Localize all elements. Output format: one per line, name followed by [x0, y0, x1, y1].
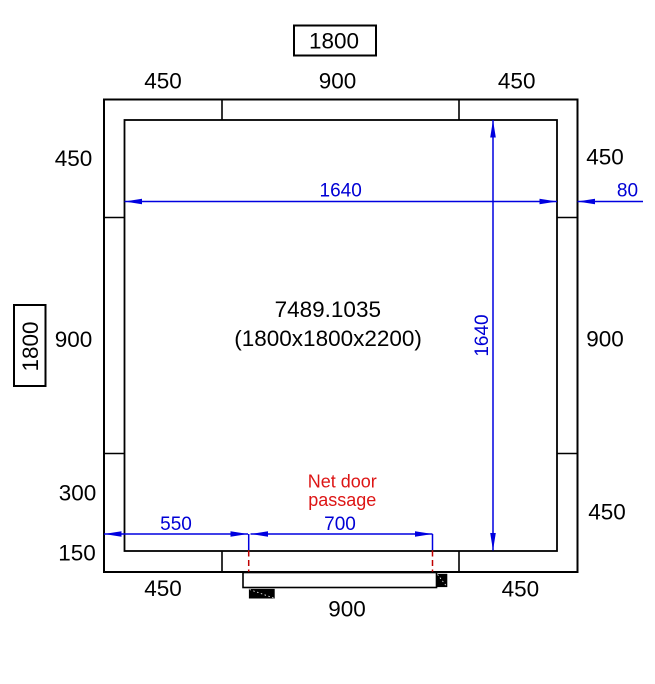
svg-text:Net door: Net door: [308, 472, 377, 492]
svg-text:450: 450: [586, 145, 624, 170]
svg-text:(1800x1800x2200): (1800x1800x2200): [234, 326, 422, 351]
svg-text:passage: passage: [308, 490, 376, 510]
svg-text:450: 450: [144, 576, 182, 601]
svg-text:450: 450: [588, 499, 626, 524]
svg-text:450: 450: [498, 69, 536, 94]
svg-text:700: 700: [324, 514, 356, 535]
svg-text:900: 900: [55, 327, 93, 352]
svg-text:450: 450: [144, 69, 182, 94]
svg-text:150: 150: [58, 540, 96, 565]
svg-text:1640: 1640: [320, 181, 362, 202]
svg-text:1640: 1640: [472, 314, 493, 356]
svg-text:1800: 1800: [309, 28, 359, 53]
svg-text:300: 300: [59, 480, 97, 505]
svg-text:900: 900: [586, 327, 624, 352]
svg-text:450: 450: [502, 577, 540, 602]
svg-text:1800: 1800: [18, 321, 43, 371]
svg-text:80: 80: [617, 181, 638, 202]
svg-text:900: 900: [319, 69, 357, 94]
svg-text:550: 550: [160, 514, 192, 535]
svg-text:450: 450: [55, 146, 93, 171]
svg-text:900: 900: [328, 596, 366, 621]
svg-text:7489.1035: 7489.1035: [275, 297, 381, 322]
